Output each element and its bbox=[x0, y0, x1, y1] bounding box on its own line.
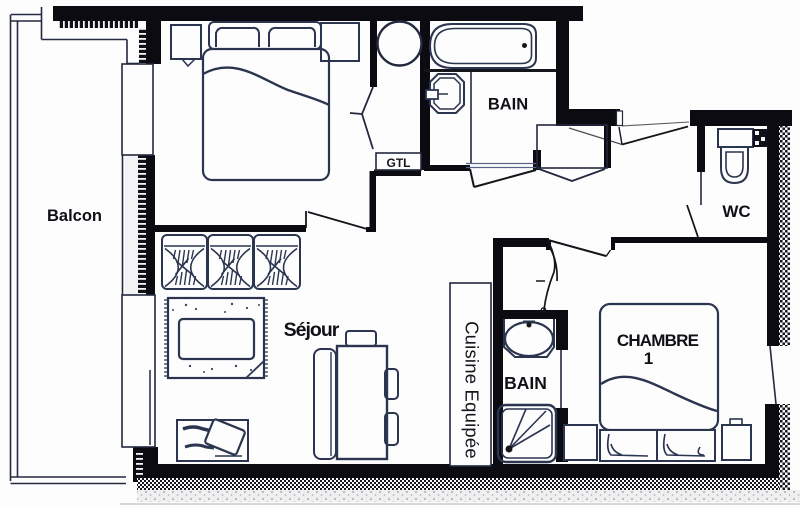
svg-text:CHAMBRE: CHAMBRE bbox=[617, 331, 699, 350]
svg-text:BAIN: BAIN bbox=[504, 373, 547, 393]
svg-text:GTL: GTL bbox=[387, 156, 411, 170]
svg-text:BAIN: BAIN bbox=[488, 96, 528, 114]
svg-text:Cuisine Equipée: Cuisine Equipée bbox=[462, 321, 483, 459]
svg-text:WC: WC bbox=[722, 202, 750, 221]
svg-text:Balcon: Balcon bbox=[47, 207, 102, 225]
svg-text:Séjour: Séjour bbox=[284, 319, 340, 341]
svg-text:1: 1 bbox=[644, 349, 653, 368]
